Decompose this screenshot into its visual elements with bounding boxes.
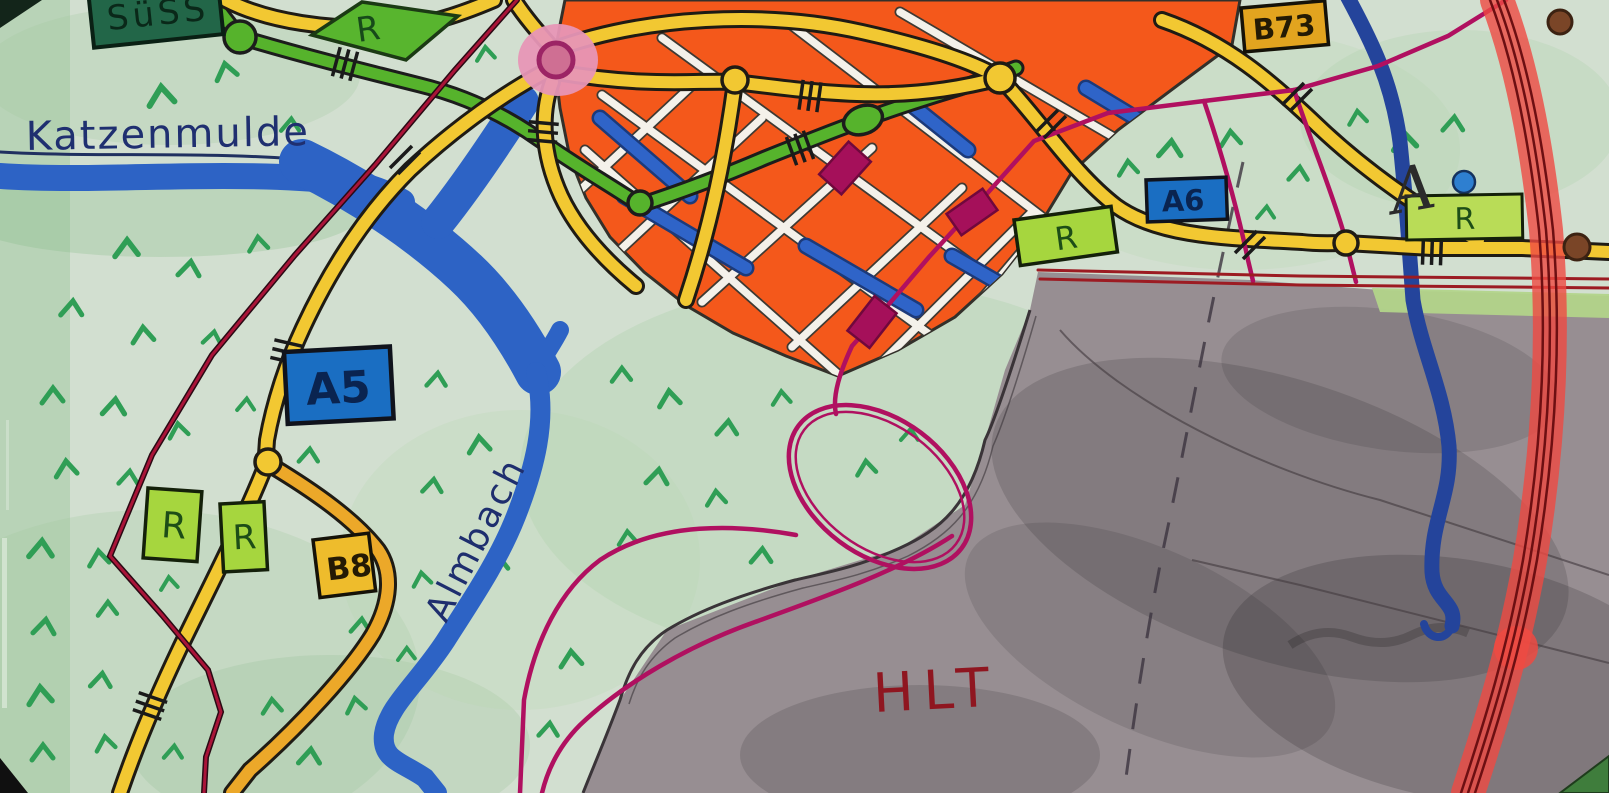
brown-junction xyxy=(1548,10,1572,34)
brown-junction xyxy=(1564,234,1590,260)
hand-drawn-map: SüSS R A5 A6 B73 B8 R R xyxy=(0,0,1609,793)
sign-a5-label: A5 xyxy=(305,362,372,416)
sign-b73: B73 xyxy=(1241,1,1329,52)
rest-area-label: R xyxy=(160,505,188,548)
roundabout-ring xyxy=(539,43,573,77)
area-label-katzenmulde: Katzenmulde xyxy=(25,109,310,160)
sign-b8-label: B8 xyxy=(325,547,374,588)
rest-area-sign: R xyxy=(143,488,202,562)
sign-b8: B8 xyxy=(313,533,376,597)
rest-area-label: R xyxy=(1454,202,1475,237)
sign-b73-label: B73 xyxy=(1251,8,1316,47)
sign-a6: A6 xyxy=(1146,177,1227,222)
rest-area-label: R xyxy=(232,517,258,558)
sign-a6-label: A6 xyxy=(1161,183,1205,218)
rest-area-sign: R xyxy=(220,502,267,572)
place-marker-dot xyxy=(1453,171,1475,193)
sign-a5: A5 xyxy=(284,346,394,423)
area-label-hlt: HLT xyxy=(871,655,1000,725)
